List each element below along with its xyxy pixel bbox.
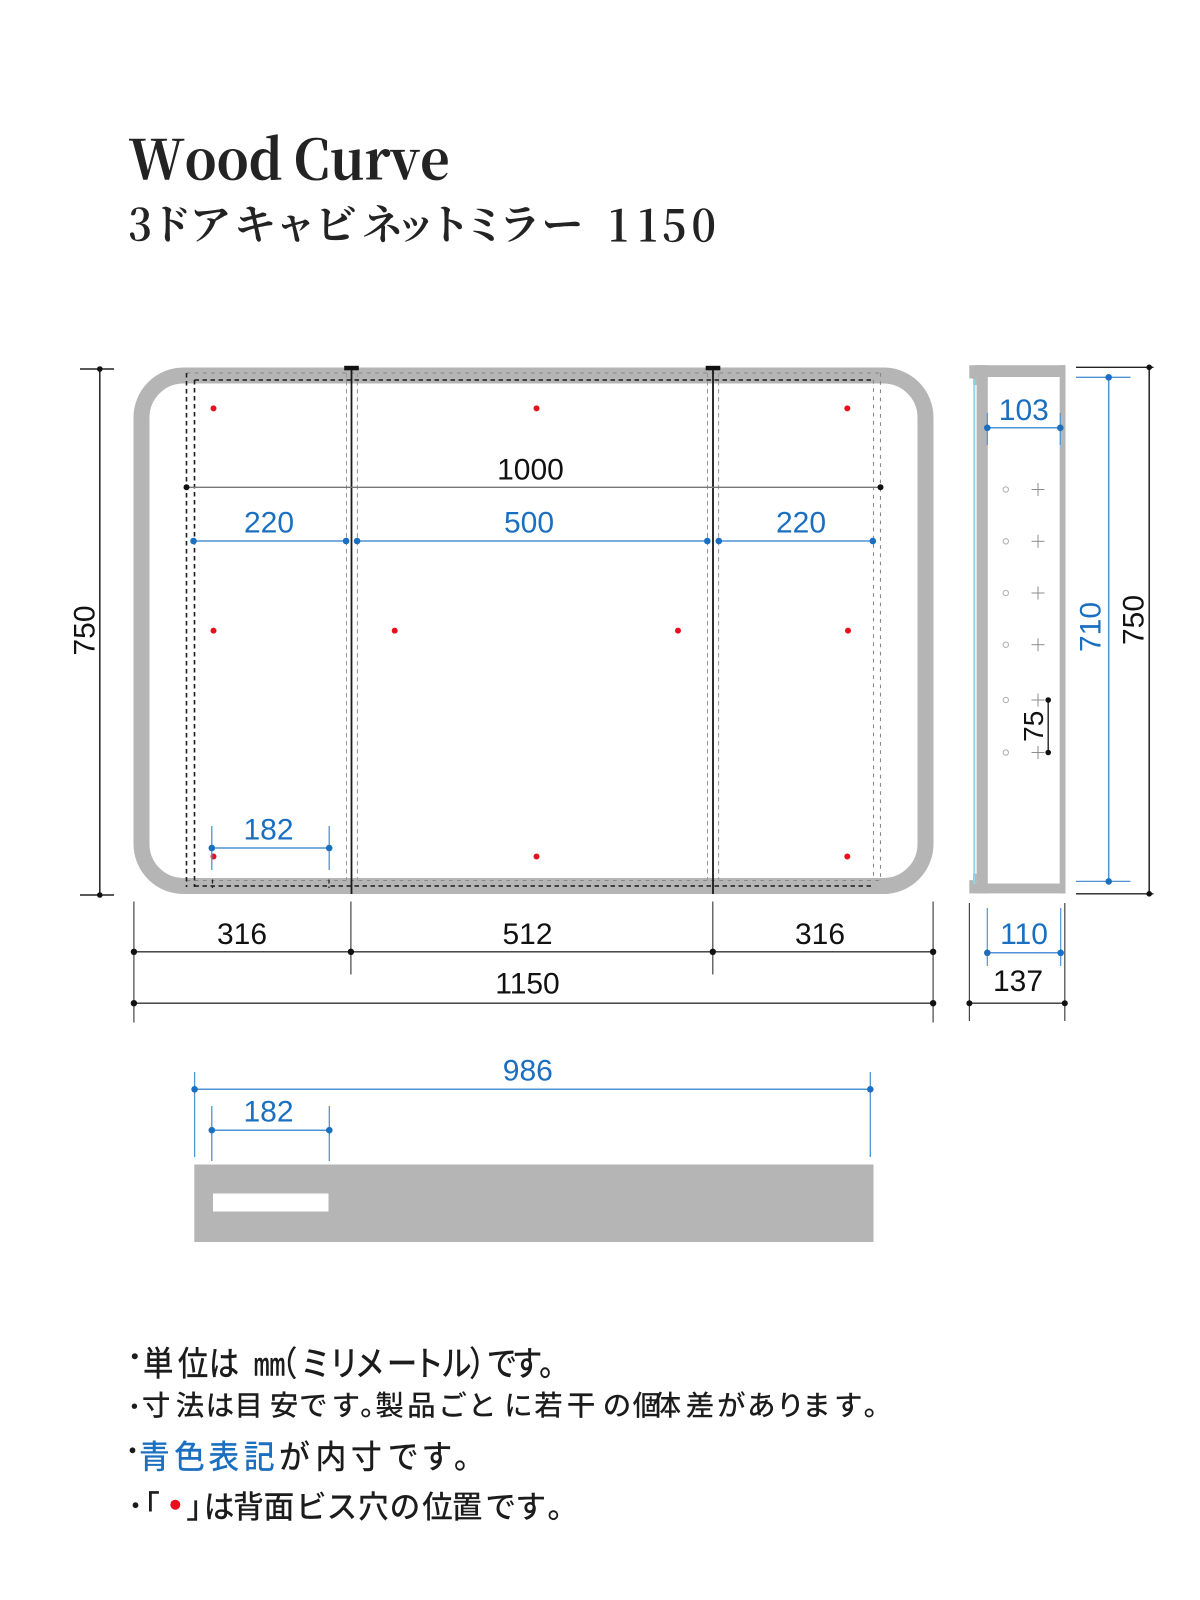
svg-text:182: 182 xyxy=(243,814,293,847)
svg-text:750: 750 xyxy=(1118,595,1151,645)
svg-text:512: 512 xyxy=(502,918,552,951)
svg-text:103: 103 xyxy=(999,394,1049,427)
svg-text:1150: 1150 xyxy=(495,968,560,1001)
svg-text:500: 500 xyxy=(504,507,554,540)
svg-text:710: 710 xyxy=(1075,602,1108,652)
svg-text:316: 316 xyxy=(217,918,267,951)
svg-text:986: 986 xyxy=(503,1055,553,1088)
svg-text:137: 137 xyxy=(993,965,1043,998)
svg-text:316: 316 xyxy=(795,918,845,951)
svg-text:110: 110 xyxy=(1000,918,1048,951)
svg-text:1000: 1000 xyxy=(497,454,564,487)
svg-text:750: 750 xyxy=(69,605,102,655)
svg-text:75: 75 xyxy=(1018,711,1049,742)
svg-text:220: 220 xyxy=(776,507,826,540)
svg-text:182: 182 xyxy=(243,1096,293,1129)
svg-text:220: 220 xyxy=(244,507,294,540)
